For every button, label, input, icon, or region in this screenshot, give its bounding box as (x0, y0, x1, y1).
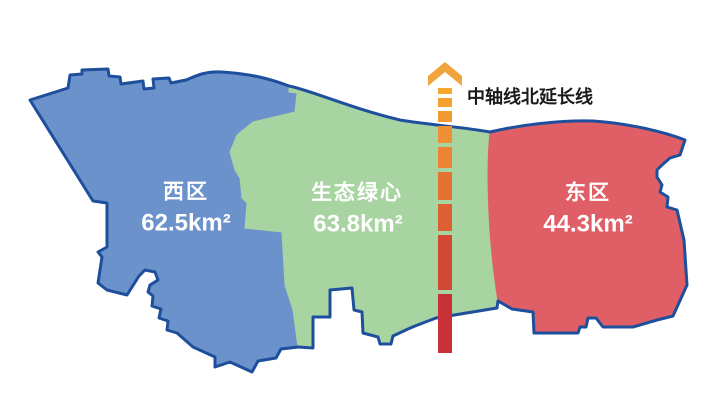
axis-segment (438, 147, 452, 168)
axis-segment (438, 204, 452, 231)
axis-segment (438, 88, 452, 94)
green-heart-label: 生态绿心 (311, 181, 403, 205)
east-district-area: 44.3km² (543, 211, 632, 238)
central-axis-label: 中轴线北延长线 (467, 86, 593, 107)
planning-map-svg: 西区 62.5km² 生态绿心 63.8km² 东区 44.3km² 中轴线北延… (0, 0, 718, 407)
axis-segment (438, 111, 452, 122)
axis-segment (438, 126, 452, 143)
planning-map: 西区 62.5km² 生态绿心 63.8km² 东区 44.3km² 中轴线北延… (0, 0, 718, 407)
west-district-area: 62.5km² (141, 210, 230, 237)
green-heart-area: 63.8km² (313, 211, 402, 238)
axis-segment (438, 98, 452, 107)
north-arrow-icon (428, 62, 462, 86)
west-district-label: 西区 (163, 181, 209, 204)
east-district-label: 东区 (565, 181, 611, 205)
axis-segment (438, 235, 452, 290)
axis-segment (438, 294, 452, 353)
axis-segment (438, 172, 452, 200)
